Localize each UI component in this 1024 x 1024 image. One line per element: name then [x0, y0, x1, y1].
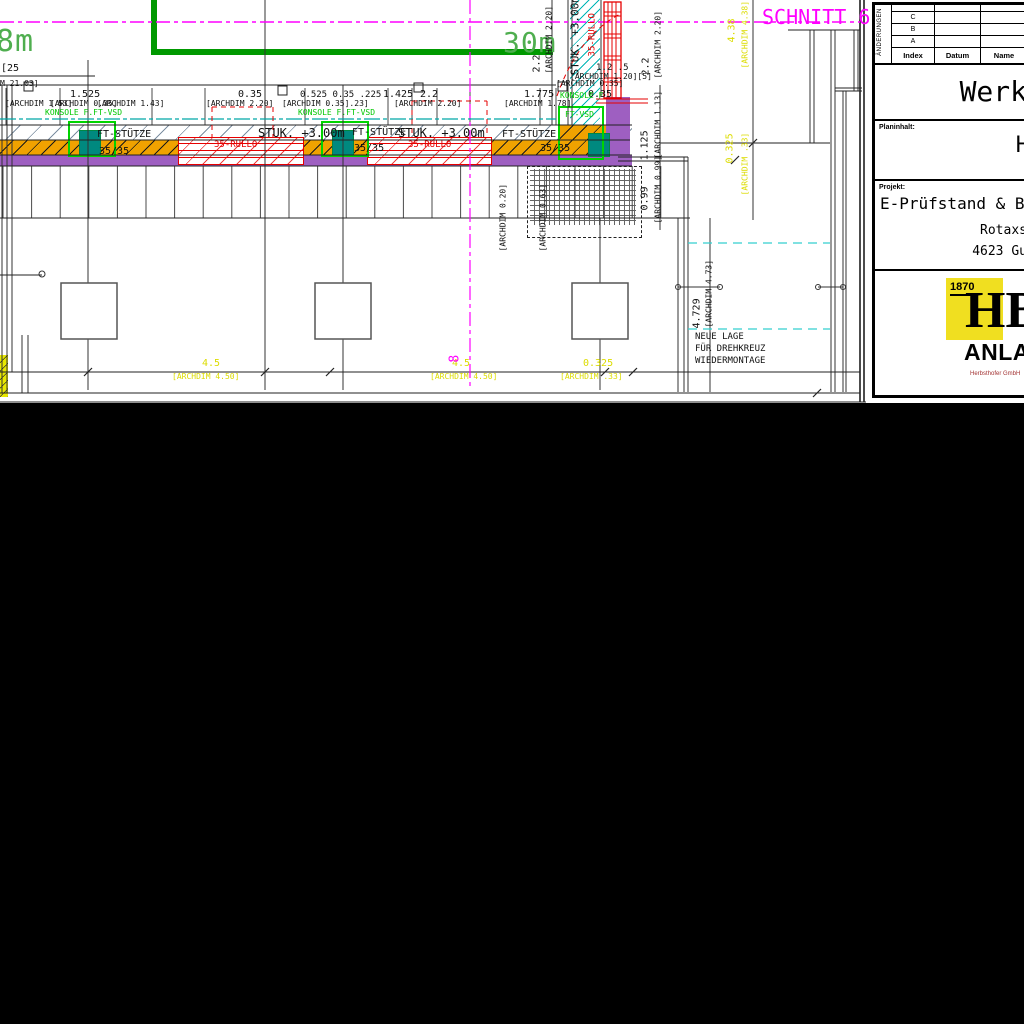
revision-table: ÄNDERUNGEN C B A Index Datum Name [875, 5, 1024, 65]
dim-annotation: 1.125 [641, 130, 652, 160]
dim-annotation: 0.99 [641, 186, 652, 210]
dim-annotation: [ARCHDIM .33] [560, 373, 623, 381]
dim-annotation: M 21.03] [0, 80, 39, 88]
dim-annotation: [ARCHDIM 4.73] [706, 260, 714, 327]
planinhalt-section: Planinhalt: H [875, 121, 1024, 181]
dim-annotation: 4.5 [202, 359, 220, 370]
dim-annotation: STUK. +3.00m [569, 0, 581, 76]
revision-side-label: ÄNDERUNGEN [875, 5, 892, 63]
dim-annotation: FT-VSD [565, 111, 594, 119]
dim-annotation: [ARCHDIM 1.78] [504, 100, 571, 108]
dim-annotation: KONSOLE F [560, 92, 603, 100]
dim-annotation: 35/35 [540, 144, 570, 155]
revision-row [892, 5, 1024, 12]
section-label: SCHNITT 6 [762, 5, 870, 29]
dim-annotation: FT-STÜTZE [97, 130, 151, 141]
dim-annotation: [ARCHDIM 2.20] [394, 100, 461, 108]
dim-annotation: [ARCHDIM 2.20] [206, 100, 273, 108]
dim-annotation: [25 [1, 64, 19, 75]
revision-row: A [892, 36, 1024, 48]
dim-annotation: 4.38 [728, 18, 739, 42]
dim-annotation: [ARCHDIM 1.13] [655, 91, 663, 158]
dim-annotation: 35/35 [354, 144, 384, 155]
dim-annotation: [ARCHDIM 0.63] [540, 184, 548, 251]
dim-annotation: 35-RULLO [214, 141, 257, 150]
dim-annotation: [ARCHDIM 4.38] [742, 1, 750, 68]
dim-annotation: FT-STÜTZE [502, 130, 556, 141]
revision-row: B [892, 24, 1024, 36]
dimension-annotations: 8m 30m SCHNITT 6 NEUE LAGE FÜR DREHKREUZ… [0, 0, 1024, 403]
title-block: ÄNDERUNGEN C B A Index Datum Name [872, 2, 1024, 398]
dim-annotation: [ARCHDIM 0.20] [500, 184, 508, 251]
dim-annotation: 0.325 [726, 133, 737, 163]
revision-row: C [892, 12, 1024, 24]
revision-header-row: Index Datum Name [892, 48, 1024, 63]
dim-annotation: STUK. +3.00m [258, 127, 345, 140]
projekt-label: Projekt: [879, 184, 905, 191]
dim-annotation: STUK. +3.00m [398, 127, 485, 140]
dim-annotation: 35-RULLO [408, 141, 451, 150]
note-line: WIEDERMONTAGE [695, 356, 765, 366]
plan-title: Werk [875, 63, 1024, 121]
dim-annotation: 1.2 .5 [596, 64, 629, 73]
note-line: FÜR DREHKREUZ [695, 344, 765, 354]
dim-annotation: 4.729 [693, 298, 704, 328]
dim-annotation: 0.325 [583, 359, 613, 370]
dim-annotation: 2.2 [533, 54, 544, 72]
dim-annotation: [ARCHDIM 2.20] [655, 11, 663, 78]
dim-annotation: [ARCHDIM .33] [742, 133, 750, 196]
projekt-name: E-Prüfstand & B [880, 194, 1024, 213]
dim-annotation: 8 [448, 355, 462, 363]
area-label-left: 8m [0, 24, 34, 59]
logo-brand: ANLA [964, 339, 1024, 366]
planinhalt-value: H [1016, 133, 1024, 158]
logo-monogram: HB [965, 285, 1024, 337]
note-line: NEUE LAGE [695, 332, 744, 342]
dim-annotation: KONSOLE F.FT-VSD [298, 109, 375, 117]
dim-annotation: 35-RULLO [589, 13, 598, 56]
dim-annotation: 2.2 [642, 57, 653, 75]
dim-annotation: [ARCHDIM 2.20] [546, 6, 554, 73]
company-logo: 1870 HB ANLA Herbsthofer GmbH [875, 271, 1024, 395]
drawing-sheet: 8m 30m SCHNITT 6 NEUE LAGE FÜR DREHKREUZ… [0, 0, 1024, 403]
dim-annotation: [ARCHDIM 4.50] [172, 373, 239, 381]
projekt-section: Projekt: E-Prüfstand & B Rotaxs 4623 Gu [875, 181, 1024, 271]
dim-annotation: [ARCHDIM 0.99] [655, 156, 663, 223]
dim-annotation: [ARCHDIM 4.50] [430, 373, 497, 381]
planinhalt-label: Planinhalt: [879, 124, 915, 131]
cad-viewport[interactable]: 8m 30m SCHNITT 6 NEUE LAGE FÜR DREHKREUZ… [0, 0, 1024, 1024]
projekt-city: 4623 Gu [972, 244, 1024, 259]
logo-subtext: Herbsthofer GmbH [970, 371, 1020, 377]
projekt-street: Rotaxs [980, 223, 1024, 238]
dim-annotation: 35/35 [99, 147, 129, 158]
dim-annotation: KONSOLE F.FT-VSD [45, 109, 122, 117]
